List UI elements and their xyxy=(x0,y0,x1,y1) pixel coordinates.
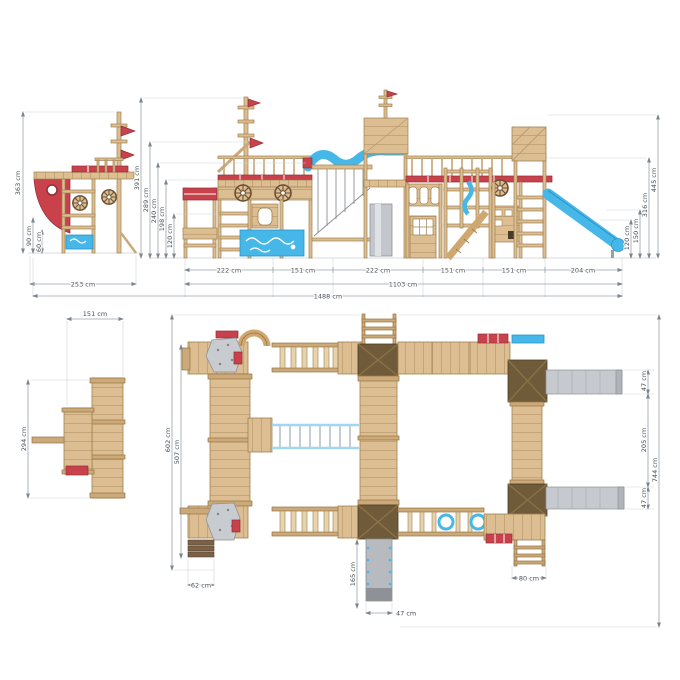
gym-ring xyxy=(471,515,485,529)
dim-label: 120 cm xyxy=(166,224,174,248)
dim-label: 602 cm xyxy=(164,428,172,452)
flag-icon xyxy=(250,138,263,148)
dim-label: 62 cm xyxy=(191,582,211,590)
side-plan-view: 151 cm 294 cm xyxy=(20,310,125,498)
window xyxy=(431,187,439,204)
mast xyxy=(244,97,248,180)
dim-label: 198 cm xyxy=(158,207,166,231)
flag-icon xyxy=(121,126,135,136)
dim-label: 1488 cm xyxy=(314,293,343,301)
dim-label: 80 cm xyxy=(519,575,539,583)
dim-label: 289 cm xyxy=(142,188,150,212)
ship-wheel-icon xyxy=(102,190,116,204)
dim-label: 47 cm xyxy=(640,488,648,508)
dim-label: 151 cm xyxy=(291,267,315,275)
dim-label: 47 cm xyxy=(640,371,648,391)
dim-label: 391 cm xyxy=(133,166,141,190)
activity-panel xyxy=(240,230,304,256)
dim-label: 222 cm xyxy=(217,267,241,275)
dim-label: 363 cm xyxy=(14,171,22,195)
ship-wheel-icon xyxy=(275,185,291,201)
ship-wheel-icon xyxy=(235,185,251,201)
dim-label: 316 cm xyxy=(641,193,649,217)
dim-label: 294 cm xyxy=(20,427,28,451)
dim-label: 507 cm xyxy=(173,440,181,464)
playground-drawing: 363 cm 90 cm 60 cm 253 cm xyxy=(0,0,680,680)
dim-label: 744 cm xyxy=(651,458,659,482)
top-plan-structure xyxy=(180,314,624,601)
dim-label: 204 cm xyxy=(571,267,595,275)
dim-label: 151 cm xyxy=(83,310,107,318)
dim-label: 253 cm xyxy=(71,281,95,289)
dim-label: 47 cm xyxy=(396,610,416,618)
dim-label: 150 cm xyxy=(632,219,640,243)
mast xyxy=(117,112,121,253)
dim-label: 1103 cm xyxy=(389,281,418,289)
deck xyxy=(34,172,134,179)
dim-label: 165 cm xyxy=(349,562,357,586)
window xyxy=(258,208,272,225)
dim-label: 151 cm xyxy=(441,267,465,275)
window xyxy=(420,187,428,204)
porthole-icon xyxy=(47,185,57,195)
front-elevation-bottom-dimensions: 222 cm 151 cm 222 cm 151 cm 151 cm 204 c… xyxy=(33,258,622,301)
side-elevation-structure xyxy=(34,112,136,253)
entry-steps xyxy=(188,540,214,557)
dim-label: 90 cm xyxy=(25,226,33,246)
balance-beam xyxy=(32,437,64,443)
technical-drawing-canvas: 363 cm 90 cm 60 cm 253 cm xyxy=(0,0,680,680)
dim-label: 240 cm xyxy=(150,199,158,223)
dim-label: 222 cm xyxy=(366,267,390,275)
window xyxy=(409,187,417,204)
dim-label: 120 cm xyxy=(623,226,631,250)
dim-label: 205 cm xyxy=(640,428,648,452)
blue-slide xyxy=(548,194,614,242)
gym-ring xyxy=(439,515,453,529)
side-plan-structure xyxy=(32,378,125,498)
ship-wheel-icon xyxy=(73,196,87,210)
dim-label: 151 cm xyxy=(502,267,526,275)
straight-slide-plan xyxy=(546,370,622,394)
top-plan-view: 602 cm 507 cm 47 cm 205 cm 47 cm 744 cm … xyxy=(164,314,659,627)
dim-label: 445 cm xyxy=(650,168,658,192)
dim-label: 60 cm xyxy=(35,232,43,252)
front-elevation-view: 391 cm 289 cm 240 cm 198 cm 120 cm 445 c… xyxy=(33,90,658,301)
